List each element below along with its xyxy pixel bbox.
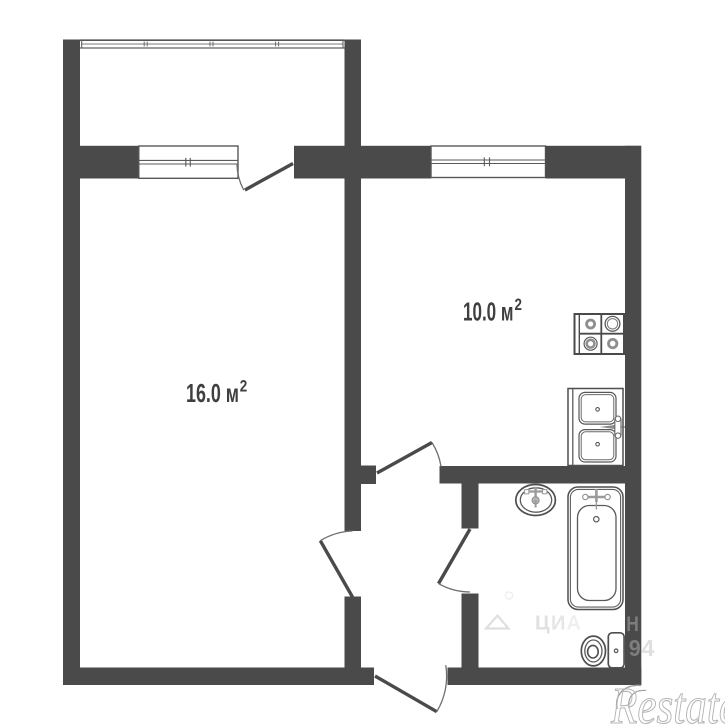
svg-text:9: 9: [629, 635, 641, 661]
svg-text:Н: Н: [626, 613, 639, 636]
svg-text:2: 2: [240, 378, 248, 396]
svg-text:2: 2: [515, 296, 523, 314]
svg-text:Restate: Restate: [610, 678, 725, 725]
svg-text:4: 4: [642, 635, 655, 661]
svg-text:16.0 м: 16.0 м: [186, 378, 239, 408]
svg-text:А: А: [567, 613, 581, 635]
svg-text:И: И: [551, 613, 565, 635]
svg-text:10.0 м: 10.0 м: [463, 296, 514, 326]
svg-text:Ц: Ц: [535, 613, 550, 635]
